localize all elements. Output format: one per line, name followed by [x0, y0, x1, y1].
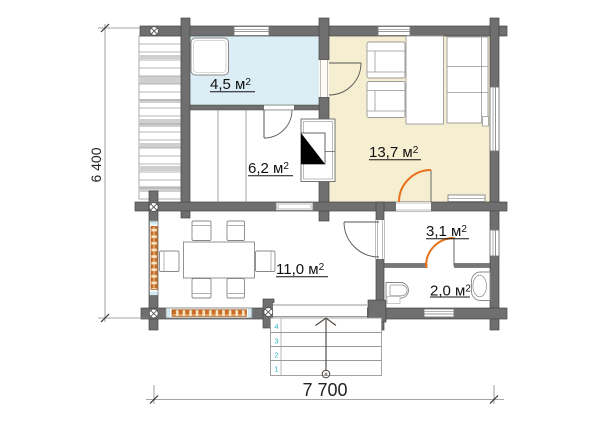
svg-text:4: 4 — [274, 322, 278, 331]
svg-text:6 400: 6 400 — [88, 147, 104, 182]
svg-text:6,2 м2: 6,2 м2 — [248, 160, 289, 177]
svg-text:4,5 м2: 4,5 м2 — [210, 76, 251, 93]
svg-text:13,7 м2: 13,7 м2 — [369, 144, 419, 161]
svg-text:3: 3 — [274, 337, 278, 346]
svg-text:1: 1 — [274, 365, 278, 374]
svg-text:3,1 м2: 3,1 м2 — [426, 223, 467, 240]
svg-text:7 700: 7 700 — [302, 380, 347, 400]
svg-text:2: 2 — [274, 351, 278, 360]
svg-text:11,0 м2: 11,0 м2 — [276, 261, 325, 278]
